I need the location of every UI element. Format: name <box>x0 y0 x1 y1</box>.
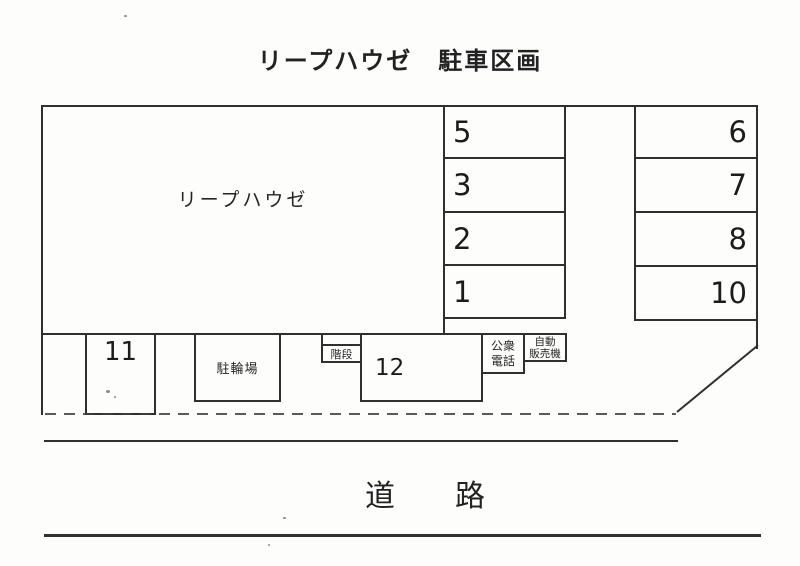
scan-speck <box>124 15 127 17</box>
parking-space-7: 7 <box>634 157 758 213</box>
parking-space-11-number: 11 <box>87 337 154 367</box>
scan-speck <box>106 390 110 393</box>
parking-space-12: 12 <box>360 333 483 402</box>
parking-space-11: 11 <box>85 333 156 415</box>
parking-space-3: 3 <box>443 157 566 213</box>
parking-space-10-number: 10 <box>710 276 747 310</box>
public-phone-box: 公衆 電話 <box>481 333 525 374</box>
scan-speck <box>268 544 270 546</box>
scan-speck <box>114 396 116 398</box>
stairs-label: 階段 <box>323 346 360 361</box>
vending-machine-box: 自動 販売機 <box>523 333 567 362</box>
parking-space-8-number: 8 <box>729 222 747 256</box>
road-label: 道 路 <box>325 471 525 515</box>
page-title: リープハウゼ 駐車区画 <box>0 41 800 76</box>
road-lower-line <box>44 534 761 537</box>
vending-machine-label: 自動 販売機 <box>529 336 561 360</box>
parking-space-12-number: 12 <box>375 355 404 381</box>
road-upper-line <box>44 440 678 442</box>
parking-space-5: 5 <box>443 105 566 159</box>
bicycle-parking-label: 駐輪場 <box>216 358 258 377</box>
building-block: リープハウゼ <box>41 105 445 335</box>
curb-dashed-line <box>45 413 676 415</box>
parking-space-1: 1 <box>443 264 566 319</box>
parking-plan-page: リープハウゼ 駐車区画 リープハウゼ 5 3 2 1 6 7 8 10 11 駐… <box>0 0 800 566</box>
parking-space-10: 10 <box>634 265 758 321</box>
stairs-box: 階段 <box>321 333 362 363</box>
parking-space-8: 8 <box>634 211 758 267</box>
parking-space-6-number: 6 <box>729 115 747 149</box>
parking-space-2: 2 <box>443 211 566 266</box>
parking-space-3-number: 3 <box>453 168 471 202</box>
parking-space-6: 6 <box>634 105 758 159</box>
parking-space-5-number: 5 <box>453 115 471 149</box>
diagonal-boundary-line <box>676 344 758 412</box>
scan-speck <box>283 517 286 519</box>
parking-space-1-number: 1 <box>453 275 471 309</box>
bicycle-parking-box: 駐輪場 <box>194 333 281 402</box>
public-phone-label: 公衆 電話 <box>491 339 515 369</box>
building-label: リープハウゼ <box>43 185 443 212</box>
parking-space-2-number: 2 <box>453 222 471 256</box>
parking-space-7-number: 7 <box>729 168 747 202</box>
